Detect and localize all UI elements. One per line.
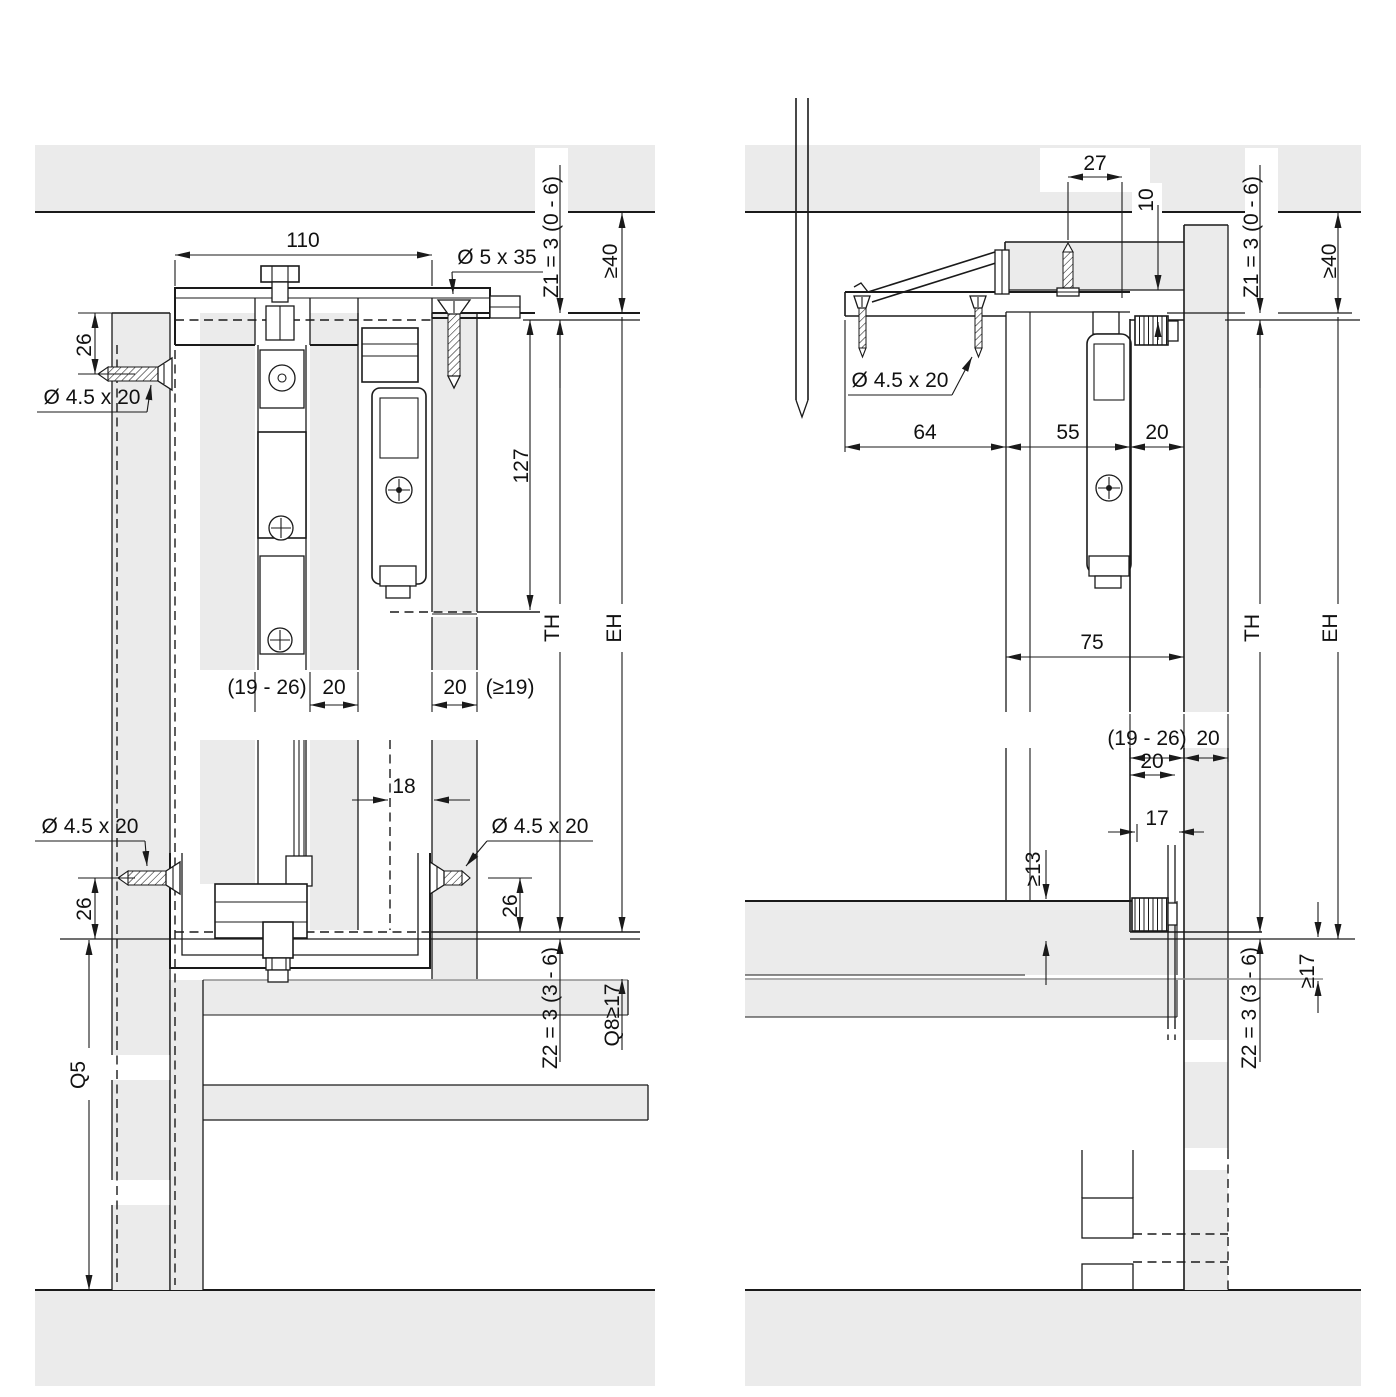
left-wall-panel bbox=[112, 313, 170, 1290]
dim-20-wall-label: 20 bbox=[1196, 727, 1219, 750]
break-symbol bbox=[796, 400, 808, 417]
dim-127-label: 127 bbox=[510, 448, 533, 483]
dim-20a-left-label: 20 bbox=[322, 676, 345, 699]
dim-18-label: 18 bbox=[392, 775, 415, 798]
dim-ge13-label: ≥13 bbox=[1022, 852, 1045, 887]
dim-75: 75 bbox=[1006, 631, 1184, 657]
dim-q5-label: Q5 bbox=[67, 1061, 90, 1089]
left-floor-panel bbox=[35, 1290, 655, 1386]
dim-z2-left: Z2 = 3 (3 - 6) bbox=[539, 939, 562, 1069]
dim-26-br-label: 26 bbox=[499, 894, 522, 917]
dim-20-guide-label: 20 bbox=[1140, 750, 1163, 773]
dim-ge40-left-label: ≥40 bbox=[599, 244, 622, 279]
label-screw-5x35: Ø 5 x 35 bbox=[452, 246, 543, 294]
fascia-clip bbox=[868, 252, 999, 302]
screw-45x20-bl-label: Ø 4.5 x 20 bbox=[42, 815, 139, 838]
dim-ge17: ≥17 bbox=[1296, 902, 1319, 1013]
dim-26-top-label: 26 bbox=[73, 333, 96, 356]
dim-z2-right: Z2 = 3 (3 - 6) bbox=[1238, 939, 1261, 1069]
dim-20b-left-label: 20 bbox=[443, 676, 466, 699]
label-screw-45x20-bottom-right: Ø 4.5 x 20 bbox=[466, 815, 593, 866]
dim-q5: Q5 bbox=[67, 940, 90, 1290]
dim-110: 110 bbox=[175, 229, 432, 286]
dim-eh-right-label: EH bbox=[1319, 613, 1342, 642]
dim-q8: Q8≥17 bbox=[601, 979, 624, 1050]
dim-55-label: 55 bbox=[1056, 421, 1079, 444]
dim-1926-right-label: (19 - 26) bbox=[1107, 727, 1186, 750]
dim-1926-left-label: (19 - 26) bbox=[227, 676, 306, 699]
dim-20-top-label: 20 bbox=[1145, 421, 1168, 444]
screw-45x20-top-label: Ø 4.5 x 20 bbox=[44, 386, 141, 409]
door1-running-gear bbox=[258, 345, 306, 670]
dim-26-bl-label: 26 bbox=[73, 897, 96, 920]
installation-drawing: 110 Ø 5 x 35 Z1 = 3 (0 - 6) ≥40 26 Ø 4.5… bbox=[0, 0, 1396, 1397]
dim-75-label: 75 bbox=[1080, 631, 1103, 654]
right-roller-carriage bbox=[1087, 312, 1131, 588]
dim-ge40-right: ≥40 bbox=[1318, 213, 1341, 313]
dim-eh-left-label: EH bbox=[603, 613, 626, 642]
dim-17-label: 17 bbox=[1145, 807, 1168, 830]
door-panel-1 bbox=[200, 313, 255, 884]
bottom-shelf-right bbox=[745, 901, 1323, 1017]
track-hex-bolt bbox=[261, 266, 299, 282]
technical-drawing-page: 110 Ø 5 x 35 Z1 = 3 (0 - 6) ≥40 26 Ø 4.5… bbox=[0, 0, 1396, 1397]
dim-eh-right: EH bbox=[1319, 317, 1342, 939]
dim-eh-left: EH bbox=[603, 317, 626, 932]
dim-64-label: 64 bbox=[913, 421, 937, 444]
bottom-guide-knurl bbox=[1132, 898, 1168, 931]
dim-row-left: (19 - 26) 20 20 (≥19) bbox=[227, 672, 534, 712]
left-view: 110 Ø 5 x 35 Z1 = 3 (0 - 6) ≥40 26 Ø 4.5… bbox=[35, 145, 655, 1386]
dim-26-bottom-right: 26 bbox=[488, 878, 532, 932]
bottom-guide-bolt bbox=[263, 922, 293, 958]
right-floor-panel bbox=[745, 1290, 1361, 1386]
door2-roller-bracket bbox=[362, 328, 426, 598]
screw-5x35-label: Ø 5 x 35 bbox=[457, 246, 536, 269]
right-view: 27 10 Z1 = 3 (0 - 6) ≥40 Ø 4.5 x 20 bbox=[745, 98, 1361, 1386]
dim-z2-right-label: Z2 = 3 (3 - 6) bbox=[1238, 947, 1261, 1069]
label-screw-45x20-right: Ø 4.5 x 20 bbox=[848, 357, 972, 395]
top-adjuster-knurl bbox=[1135, 316, 1168, 345]
fascia-screws bbox=[854, 296, 986, 357]
dim-ge19-label: (≥19) bbox=[486, 676, 535, 699]
dim-z2-left-label: Z2 = 3 (3 - 6) bbox=[539, 947, 562, 1069]
top-shelf-panel bbox=[1005, 242, 1184, 290]
dim-q8-label: Q8≥17 bbox=[601, 984, 624, 1047]
dim-20-guide: 20 bbox=[1130, 750, 1175, 775]
dim-127: 127 bbox=[510, 320, 533, 610]
middle-panel bbox=[310, 313, 358, 930]
label-screw-45x20-top: Ø 4.5 x 20 bbox=[37, 385, 151, 412]
bottom-shelf-panels bbox=[170, 980, 648, 1290]
dim-th-right: TH bbox=[1241, 324, 1264, 932]
screw-45x20-br-label: Ø 4.5 x 20 bbox=[492, 815, 589, 838]
dim-th-right-label: TH bbox=[1241, 614, 1264, 642]
dim-ge17-label: ≥17 bbox=[1296, 954, 1319, 989]
dim-110-label: 110 bbox=[286, 229, 319, 252]
dim-10-label: 10 bbox=[1135, 188, 1158, 211]
screw-45x20-right-label: Ø 4.5 x 20 bbox=[852, 369, 949, 392]
dim-th-left-label: TH bbox=[541, 614, 564, 642]
dim-ge40-left: ≥40 bbox=[599, 213, 622, 313]
dim-27-label: 27 bbox=[1083, 152, 1106, 175]
